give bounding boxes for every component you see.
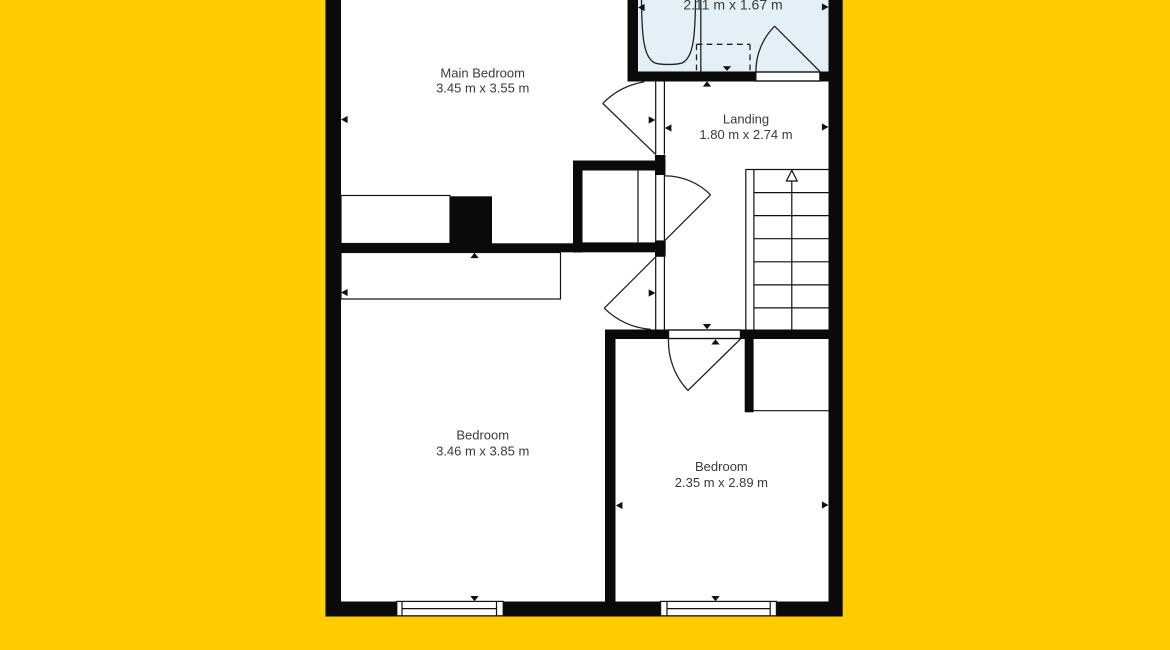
- svg-text:Landing: Landing: [723, 111, 769, 126]
- svg-text:3.45 m x 3.55 m: 3.45 m x 3.55 m: [436, 80, 529, 95]
- svg-text:Bedroom: Bedroom: [456, 428, 509, 443]
- svg-text:1.80 m x 2.74 m: 1.80 m x 2.74 m: [699, 127, 792, 142]
- svg-text:Main Bedroom: Main Bedroom: [440, 66, 525, 81]
- svg-text:2.11 m x 1.67 m: 2.11 m x 1.67 m: [683, 0, 782, 12]
- svg-text:Bedroom: Bedroom: [695, 459, 748, 474]
- svg-text:2.35 m x 2.89 m: 2.35 m x 2.89 m: [675, 475, 768, 490]
- svg-text:3.46 m x 3.85 m: 3.46 m x 3.85 m: [436, 444, 529, 459]
